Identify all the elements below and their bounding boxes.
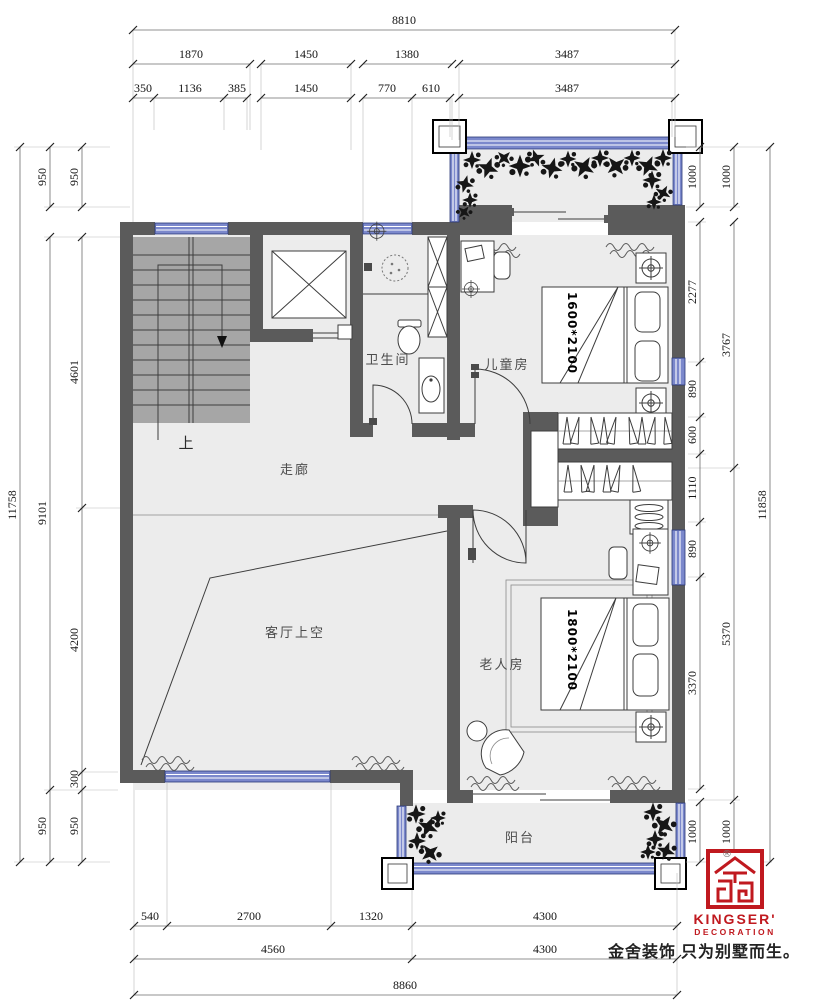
logo-brand-text: KINGSER' [662, 911, 808, 927]
dim-top: 1380 [395, 47, 419, 61]
elder-sliding-door [473, 794, 610, 800]
dim-right: 2277 [685, 280, 699, 304]
dim-right: 1110 [685, 476, 699, 499]
dim-right: 1000 [719, 820, 733, 844]
desk-chair [494, 252, 510, 279]
dim-right: 3370 [685, 671, 699, 695]
dim-top: 770 [378, 81, 396, 95]
dim-left: 300 [67, 770, 81, 788]
floor-plan-page: 8810 1870 1450 1380 3487 350 1136 385 14… [0, 0, 813, 1000]
pillow [635, 292, 660, 332]
dim-top: 1136 [178, 81, 202, 95]
elder-bed-size: 1800*2100 [565, 609, 579, 691]
dim-bottom: 4300 [533, 909, 557, 923]
dim-right: 1000 [685, 165, 699, 189]
dim-top: 1450 [294, 47, 318, 61]
dim-bottom: 4300 [533, 942, 557, 956]
room-label-balcony: 阳台 [505, 830, 535, 845]
dim-top: 385 [228, 81, 246, 95]
room-label-bathroom: 卫生间 [365, 352, 410, 367]
registered-mark: ® [722, 849, 732, 860]
toilet-icon [398, 326, 420, 354]
kingser-emblem-icon: ® [706, 849, 764, 909]
stair-up-label: 上 [178, 435, 193, 452]
dim-right: 3767 [719, 333, 733, 357]
room-label-corridor: 走廊 [280, 462, 310, 477]
dim-left: 950 [67, 817, 81, 835]
dim-bottom: 1320 [359, 909, 383, 923]
dim-right: 1000 [719, 165, 733, 189]
dim-top-overall: 8810 [392, 13, 416, 27]
dim-right: 5370 [719, 622, 733, 646]
logo-tagline: 金舍装饰 只为别墅而生。 [596, 938, 812, 962]
dim-left-overall: 11758 [5, 490, 19, 520]
dim-right: 890 [685, 380, 699, 398]
dim-left: 950 [35, 168, 49, 186]
shower-control [364, 263, 372, 271]
kingser-logo: ® KINGSER' DECORATION [662, 849, 808, 937]
dim-bottom: 4560 [261, 942, 285, 956]
dim-left: 9101 [35, 501, 49, 525]
dim-top: 1450 [294, 81, 318, 95]
dim-right-overall: 11858 [755, 490, 769, 520]
dim-top: 3487 [555, 47, 579, 61]
dim-right: 1000 [685, 820, 699, 844]
pillow [633, 604, 658, 646]
dim-left: 4601 [67, 360, 81, 384]
dim-right: 600 [685, 426, 699, 444]
dim-left: 4200 [67, 628, 81, 652]
room-label-void: 客厅上空 [265, 625, 325, 640]
dim-right: 890 [685, 540, 699, 558]
desk-chair [609, 547, 627, 579]
dim-bottom-overall: 8860 [393, 978, 417, 992]
room-label-elder: 老人房 [479, 657, 524, 672]
desk [633, 529, 668, 595]
children-bed-size: 1600*2100 [565, 292, 579, 374]
closet-niche [531, 431, 558, 507]
dim-left: 950 [35, 817, 49, 835]
dim-left: 950 [67, 168, 81, 186]
dim-top: 610 [422, 81, 440, 95]
dim-bottom: 540 [141, 909, 159, 923]
dim-top: 1870 [179, 47, 203, 61]
staircase [133, 237, 250, 440]
room-label-children: 儿童房 [484, 357, 529, 372]
logo-division-text: DECORATION [662, 927, 808, 937]
pillow [635, 341, 660, 381]
dim-top: 3487 [555, 81, 579, 95]
side-table [467, 721, 487, 741]
pillow [633, 654, 658, 696]
dim-top: 350 [134, 81, 152, 95]
dim-bottom: 2700 [237, 909, 261, 923]
